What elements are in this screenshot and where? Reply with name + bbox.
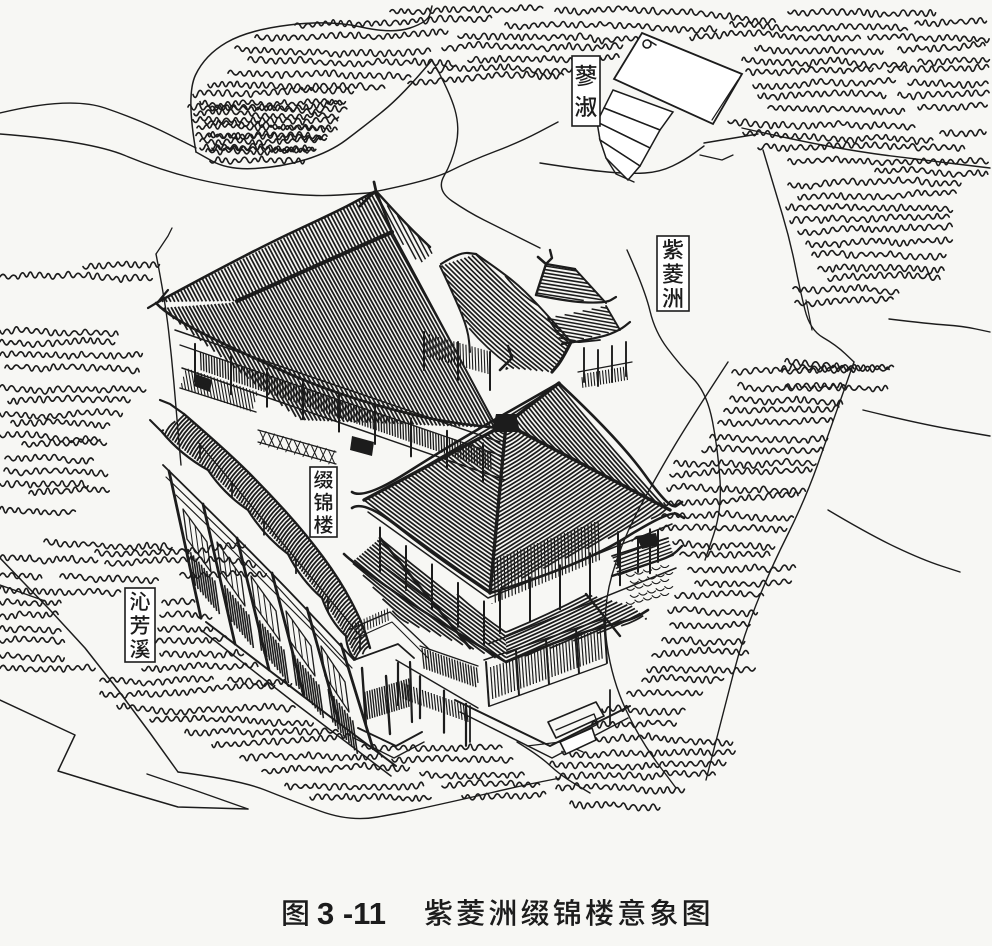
svg-text:3 -11: 3 -11 [317, 896, 386, 931]
